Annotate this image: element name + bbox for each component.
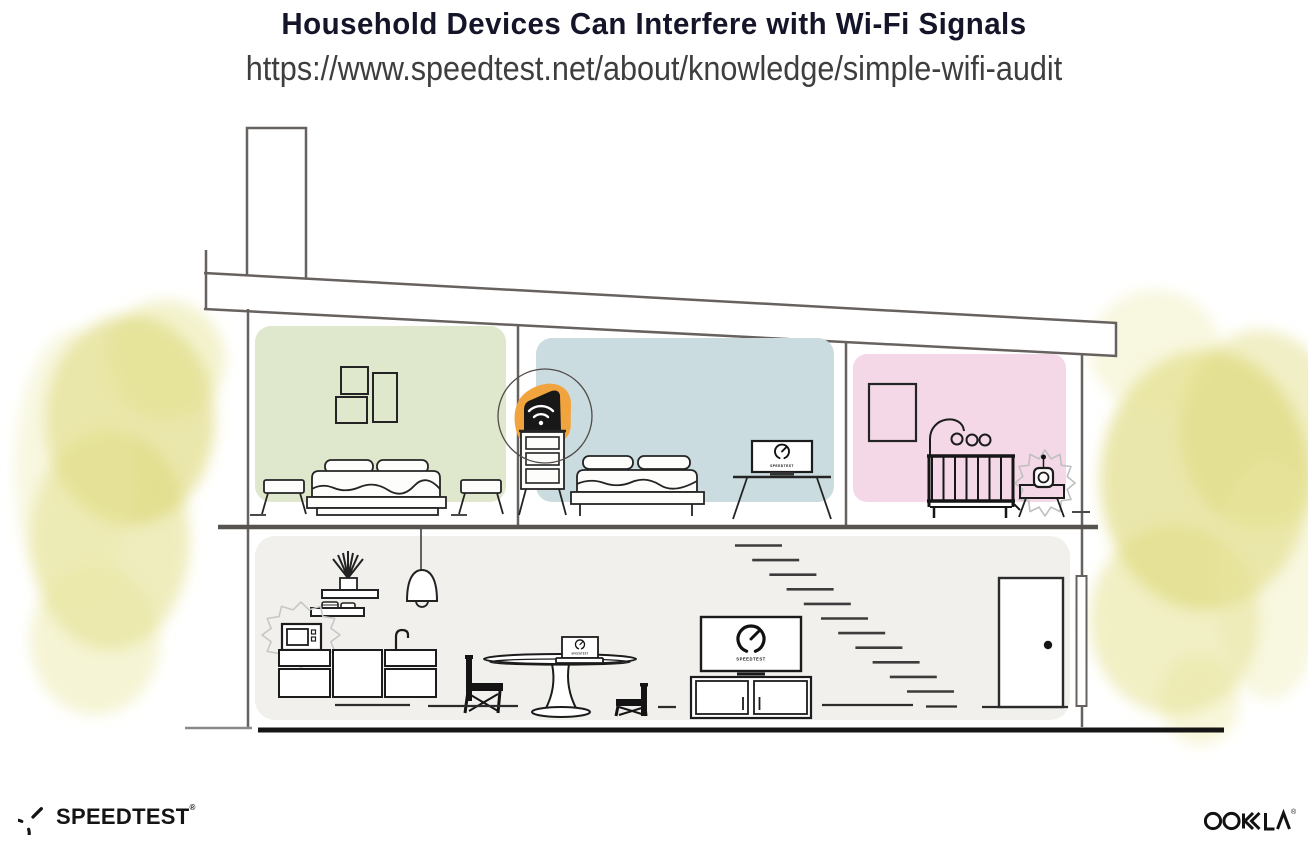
speedtest-gauge-icon xyxy=(18,800,49,835)
kitchen-counter xyxy=(279,650,436,697)
downspout xyxy=(1077,576,1087,706)
tv-screen-label: SPEEDTEST xyxy=(736,657,765,662)
tv-console xyxy=(691,677,811,718)
bed-middle xyxy=(571,456,704,516)
speedtest-logo: SPEEDTEST® xyxy=(18,799,196,835)
laptop-screen-label: SPEEDTEST xyxy=(572,653,589,656)
registered-mark: ® xyxy=(1291,808,1297,816)
registered-mark: ® xyxy=(190,803,196,812)
laptop-dining: SPEEDTEST xyxy=(556,637,603,663)
tree-right xyxy=(1090,290,1308,745)
door-knob xyxy=(1044,641,1052,649)
tv: SPEEDTEST xyxy=(701,617,801,674)
ookla-logo: ® xyxy=(1204,804,1298,834)
house-illustration: SPEEDTEST xyxy=(0,0,1308,861)
tree-left xyxy=(15,300,225,715)
laptop-bedroom: SPEEDTEST xyxy=(752,441,812,476)
page: Household Devices Can Interfere with Wi-… xyxy=(0,0,1308,861)
front-door xyxy=(999,578,1063,707)
bed-left xyxy=(307,460,446,515)
laptop-screen-label: SPEEDTEST xyxy=(770,464,794,468)
speedtest-wordmark: SPEEDTEST® xyxy=(56,804,196,830)
microwave xyxy=(282,624,321,650)
ookla-wordmark: ® xyxy=(1204,804,1298,834)
